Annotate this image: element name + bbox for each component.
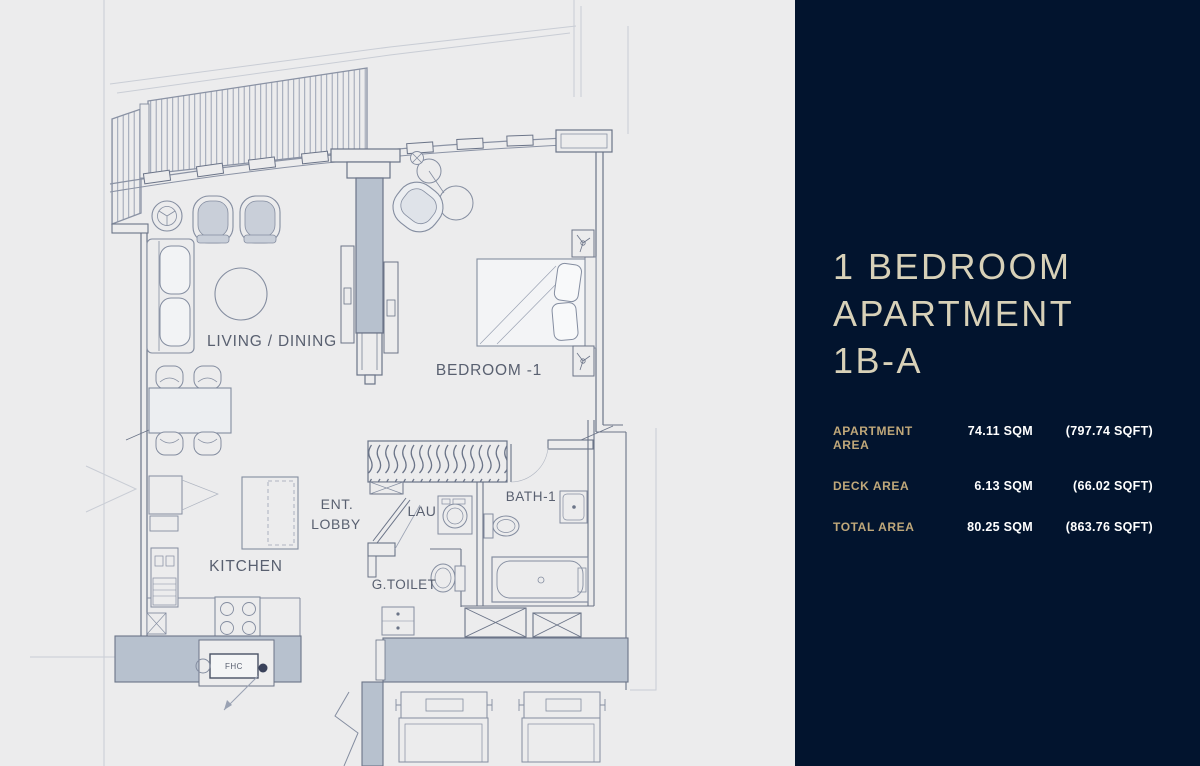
deck-area-sqft: (66.02 SQFT) [1033, 479, 1153, 493]
wardrobe [368, 441, 507, 494]
fhc-label: FHC [225, 662, 243, 671]
area-row-deck: DECK AREA 6.13 SQM (66.02 SQFT) [833, 479, 1153, 493]
fridge [149, 476, 218, 514]
total-area-sqft: (863.76 SQFT) [1033, 520, 1153, 534]
floor-plan: FHC LIVING [0, 0, 795, 766]
bath-label: BATH-1 [506, 489, 557, 504]
sofa [147, 239, 194, 353]
apartment-title-line3: 1B-A [833, 337, 1074, 384]
apartment-title: 1 BEDROOM APARTMENT 1B-A [833, 243, 1074, 384]
living-dining-label: LIVING / DINING [207, 333, 337, 350]
g-toilet-label: G.TOILET [372, 577, 436, 592]
ent-lobby-label-line2: LOBBY [311, 516, 361, 532]
total-area-label: TOTAL AREA [833, 520, 935, 534]
lift-lobby [396, 692, 605, 762]
column-media-wall [331, 149, 400, 384]
dining-set [149, 366, 231, 455]
kitchen-island [242, 477, 298, 549]
guest-toilet-vanity [382, 607, 414, 635]
bed [477, 257, 596, 348]
bath-basin [560, 491, 587, 523]
info-panel: 1 BEDROOM APARTMENT 1B-A APARTMENT AREA … [795, 0, 1200, 766]
bath-wc [484, 514, 519, 538]
deck-area-label: DECK AREA [833, 479, 935, 493]
kitchen-base-unit [147, 613, 166, 634]
reading-chair-and-lamp [385, 152, 473, 240]
deck-railing [112, 68, 367, 224]
bedroom-label: BEDROOM -1 [436, 362, 542, 379]
floor-plan-area: FHC LIVING [0, 0, 795, 766]
coffee-table [215, 268, 267, 320]
kitchen-sink [151, 548, 178, 607]
total-area-sqm: 80.25 SQM [935, 520, 1033, 534]
area-row-apartment: APARTMENT AREA 74.11 SQM (797.74 SQFT) [833, 424, 1153, 452]
apartment-area-sqm: 74.11 SQM [935, 424, 1033, 438]
apartment-area-sqft: (797.74 SQFT) [1033, 424, 1153, 438]
service-shafts [465, 608, 581, 637]
kitchen-label: KITCHEN [209, 558, 283, 575]
page: FHC LIVING [0, 0, 1200, 766]
deck-area-sqm: 6.13 SQM [935, 479, 1033, 493]
area-row-total: TOTAL AREA 80.25 SQM (863.76 SQFT) [833, 520, 1153, 534]
ent-lobby-label-line1: ENT. [321, 496, 354, 512]
stove [215, 597, 260, 637]
bathtub [492, 557, 588, 602]
apartment-title-line1: 1 BEDROOM [833, 243, 1074, 290]
break-line [335, 692, 358, 766]
lau-label: LAU [407, 503, 436, 519]
living-armchairs [193, 196, 280, 243]
apartment-title-line2: APARTMENT [833, 290, 1074, 337]
area-table: APARTMENT AREA 74.11 SQM (797.74 SQFT) D… [833, 424, 1153, 561]
living-side-table [152, 201, 182, 231]
washing-machine [438, 496, 472, 534]
apartment-area-label: APARTMENT AREA [833, 424, 935, 452]
